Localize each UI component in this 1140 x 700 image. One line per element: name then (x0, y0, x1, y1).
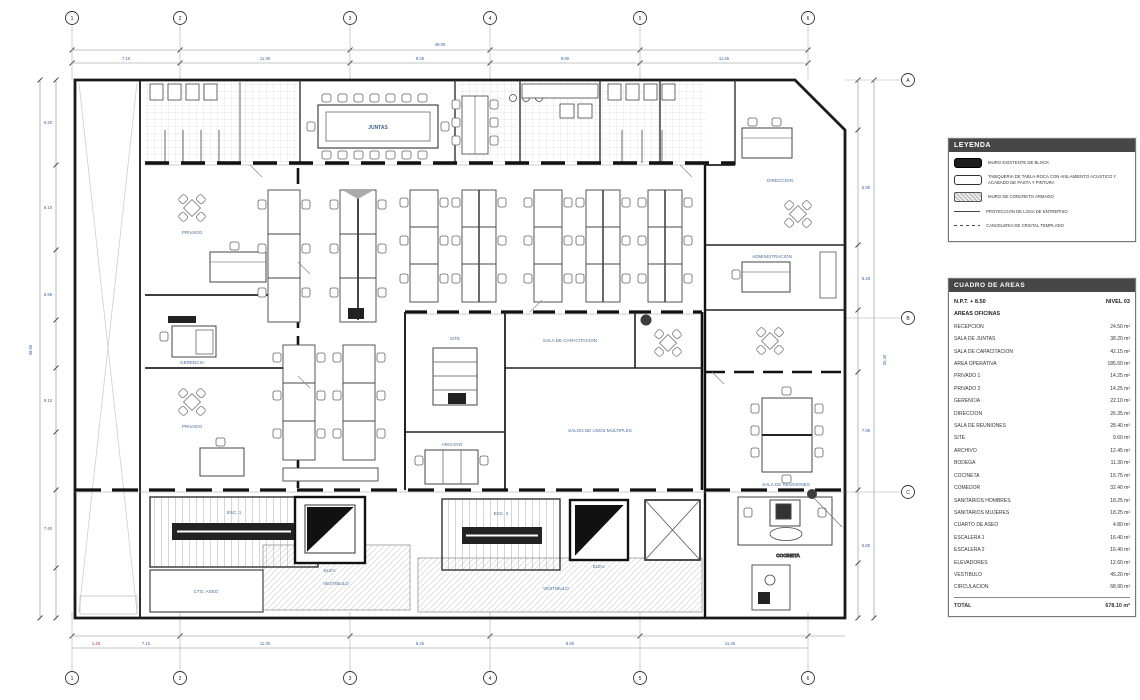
room-area: 15.75 m² (1110, 470, 1130, 482)
room-name: SALA DE REUNIONES (954, 420, 1006, 432)
dimension-text-left: 6.20 6.10 5.95 8.10 7.40 38.55 (28, 120, 53, 531)
dimension-chain-left (38, 78, 59, 621)
svg-text:9.25: 9.25 (416, 56, 425, 61)
svg-text:11.45: 11.45 (725, 641, 736, 646)
room-area: 11.30 m² (1111, 457, 1130, 469)
grid-bubbles-right: A B C (902, 74, 915, 499)
svg-text:C: C (906, 490, 910, 496)
legend-item-label: PROYECCION DE LOSA DE ENTREPISO (986, 209, 1068, 215)
legend-item: TABIQUERIA DE TABLA-ROCA CON AISLAMIENTO… (954, 174, 1130, 186)
svg-text:6.10: 6.10 (44, 205, 53, 210)
room-name: RECEPCION (954, 321, 984, 333)
stair-2: ESC. 2 (442, 499, 560, 570)
svg-text:1: 1 (71, 16, 74, 22)
svg-text:11.30: 11.30 (260, 641, 271, 646)
legend-item-label: MURO DE CONCRETO ARMADO (988, 194, 1054, 200)
legend-item: MURO EXISTENTE DE BLOCK (954, 158, 1130, 168)
svg-text:1: 1 (71, 676, 74, 682)
svg-text:4: 4 (489, 676, 492, 682)
room-area: 14.25 m² (1110, 370, 1130, 382)
table-row: BODEGA11.30 m² (954, 457, 1130, 469)
room-area: 9.60 m² (1113, 432, 1130, 444)
svg-text:3: 3 (349, 676, 352, 682)
central-core-rooms: SITE ARCHIVO SALA DE CAPACITACION SALON … (405, 312, 702, 490)
room-name: SITE (954, 432, 965, 444)
table-row: SALA DE CAPACITACION42.15 m² (954, 346, 1130, 358)
room-name: SANITARIOS HOMBRES (954, 495, 1011, 507)
room-name: ESCALERA 1 (954, 532, 985, 544)
svg-text:ADMINISTRACION: ADMINISTRACION (752, 254, 792, 259)
table-row: PRIVADO 114.25 m² (954, 370, 1130, 382)
dashed-swatch-icon (954, 222, 980, 230)
room-area: 32.40 m² (1110, 482, 1130, 494)
svg-text:SITE: SITE (450, 336, 460, 341)
table-row: SANITARIOS HOMBRES18.25 m² (954, 495, 1130, 507)
open-office-benches (258, 190, 692, 481)
room-area: 185.60 m² (1107, 358, 1130, 370)
svg-text:9.90: 9.90 (566, 641, 575, 646)
svg-text:7.10: 7.10 (142, 641, 151, 646)
legend-item-label: TABIQUERIA DE TABLA-ROCA CON AISLAMIENTO… (988, 174, 1130, 186)
svg-text:ELEV.: ELEV. (324, 568, 337, 573)
svg-text:VESTIBULO: VESTIBULO (543, 586, 569, 591)
total-value: 678.10 m² (1105, 600, 1130, 612)
svg-text:49.00: 49.00 (435, 42, 446, 47)
room-area: 12.45 m² (1110, 445, 1130, 457)
room-name: PRIVADO 1 (954, 370, 980, 382)
svg-text:5.90: 5.90 (862, 185, 871, 190)
svg-text:6: 6 (807, 676, 810, 682)
meeting-room-top: JUNTAS (307, 94, 498, 159)
legend-item: MURO DE CONCRETO ARMADO (954, 192, 1130, 202)
svg-text:ELEV.: ELEV. (593, 564, 606, 569)
room-area: 24.50 m² (1110, 321, 1130, 333)
room-area: 16.40 m² (1110, 532, 1130, 544)
table-row: RECEPCION24.50 m² (954, 321, 1130, 333)
room-name: GERENCIA (954, 395, 980, 407)
room-name: COMEDOR (954, 482, 980, 494)
svg-text:COCINETA: COCINETA (776, 553, 800, 558)
table-row: SALA DE REUNIONES28.40 m² (954, 420, 1130, 432)
bottom-core-band: VESTIBULO VESTIBULO ESC. 1 ELEV. CTO. AS… (75, 489, 845, 612)
room-label: JUNTAS (368, 125, 388, 131)
svg-text:GERENCIA: GERENCIA (180, 360, 205, 365)
svg-text:6.80: 6.80 (862, 543, 871, 548)
svg-text:CTO. ASEO: CTO. ASEO (194, 589, 219, 594)
areas-panel: CUADRO DE AREAS N.P.T. + 8.50 NIVEL 03 A… (948, 278, 1136, 617)
svg-text:PRIVADO: PRIVADO (182, 230, 203, 235)
section-label: AREAS OFICINAS (954, 308, 1000, 320)
svg-text:5: 5 (639, 16, 642, 22)
table-row: SITE9.60 m² (954, 432, 1130, 444)
svg-text:6.20: 6.20 (44, 120, 53, 125)
room-area: 14.25 m² (1110, 383, 1130, 395)
svg-text:VESTIBULO: VESTIBULO (323, 581, 349, 586)
room-area: 22.10 m² (1110, 395, 1130, 407)
table-row: ELEVADORES12.60 m² (954, 557, 1130, 569)
svg-text:11.30: 11.30 (260, 56, 271, 61)
room-name: SALA DE CAPACITACION (954, 346, 1013, 358)
svg-text:2: 2 (179, 676, 182, 682)
svg-text:2: 2 (179, 16, 182, 22)
table-row: VESTIBULO45.20 m² (954, 569, 1130, 581)
room-name: SALA DE JUNTAS (954, 333, 995, 345)
screenshot-stage: 49.00 7.10 11.30 9.25 9.90 11.45 1.20 7.… (0, 0, 1140, 700)
svg-text:PRIVADO: PRIVADO (182, 424, 203, 429)
svg-text:8.10: 8.10 (44, 398, 53, 403)
svg-text:7.10: 7.10 (122, 56, 131, 61)
room-area: 16.40 m² (1110, 544, 1130, 556)
table-row: CUARTO DE ASEO4.80 m² (954, 519, 1130, 531)
table-row: COCINETA15.75 m² (954, 470, 1130, 482)
svg-text:3: 3 (349, 16, 352, 22)
svg-text:11.45: 11.45 (719, 56, 730, 61)
grid-bubbles-bottom: 1 2 3 4 5 6 (66, 672, 815, 685)
room-name: COCINETA (954, 470, 979, 482)
legend-header: LEYENDA (949, 139, 1135, 152)
svg-text:SALA DE REUNIONES: SALA DE REUNIONES (762, 482, 810, 487)
floor-plan-drawing: 49.00 7.10 11.30 9.25 9.90 11.45 1.20 7.… (0, 0, 940, 700)
room-area: 26.35 m² (1110, 408, 1130, 420)
svg-text:4: 4 (489, 16, 492, 22)
legend-item-label: CANCELERIA DE CRISTAL TEMPLADO (986, 223, 1064, 229)
solid-swatch-icon (954, 158, 982, 168)
svg-text:ARCHIVO: ARCHIVO (442, 442, 463, 447)
areas-header: CUADRO DE AREAS (949, 279, 1135, 292)
elevator-1: ELEV. (295, 497, 365, 573)
table-row: GERENCIA22.10 m² (954, 395, 1130, 407)
room-area: 42.15 m² (1110, 346, 1130, 358)
room-name: CUARTO DE ASEO (954, 519, 998, 531)
level-label: N.P.T. + 8.50 (954, 296, 986, 308)
table-row: AREA OPERATIVA185.60 m² (954, 358, 1130, 370)
room-area: 68.90 m² (1110, 581, 1130, 593)
total-row: TOTAL 678.10 m² (954, 597, 1130, 612)
concrete-swatch-icon (954, 192, 982, 202)
svg-text:ESC. 2: ESC. 2 (494, 511, 509, 516)
room-area: 45.20 m² (1110, 569, 1130, 581)
legend-panel: LEYENDA MURO EXISTENTE DE BLOCKTABIQUERI… (948, 138, 1136, 242)
section-row: AREAS OFICINAS (954, 308, 1130, 320)
room-area: 38.20 m² (1110, 333, 1130, 345)
room-name: ELEVADORES (954, 557, 988, 569)
room-name: CIRCULACION (954, 581, 988, 593)
table-row: ARCHIVO12.45 m² (954, 445, 1130, 457)
table-row: ESCALERA 216.40 m² (954, 544, 1130, 556)
level-row: N.P.T. + 8.50 NIVEL 03 (954, 296, 1130, 308)
room-name: VESTIBULO (954, 569, 982, 581)
area-rows: RECEPCION24.50 m²SALA DE JUNTAS38.20 m²S… (954, 321, 1130, 594)
grid-bubbles-top: 1 2 3 4 5 6 (66, 12, 815, 25)
dimension-text-bottom: 1.20 7.10 11.30 9.25 9.90 11.45 (92, 641, 736, 646)
table-row: CIRCULACION68.90 m² (954, 581, 1130, 593)
dimension-chain-right (856, 78, 877, 621)
room-name: SANITARIOS MUJERES (954, 507, 1009, 519)
level-value: NIVEL 03 (1106, 296, 1130, 308)
stair-1: ESC. 1 (150, 497, 318, 567)
duct-shaft (645, 500, 700, 560)
svg-text:9.90: 9.90 (561, 56, 570, 61)
room-name: PRIVADO 2 (954, 383, 980, 395)
svg-text:SALON DE USOS MULTIPLES: SALON DE USOS MULTIPLES (568, 428, 632, 433)
svg-text:7.95: 7.95 (862, 428, 871, 433)
svg-text:38.55: 38.55 (28, 344, 33, 355)
legend-items: MURO EXISTENTE DE BLOCKTABIQUERIA DE TAB… (949, 152, 1135, 241)
room-area: 18.25 m² (1110, 495, 1130, 507)
outline-swatch-icon (954, 175, 982, 185)
line-dot-swatch-icon (954, 208, 980, 216)
svg-text:9.25: 9.25 (416, 641, 425, 646)
room-name: ARCHIVO (954, 445, 977, 457)
table-row: COMEDOR32.40 m² (954, 482, 1130, 494)
areas-body: N.P.T. + 8.50 NIVEL 03 AREAS OFICINAS RE… (949, 292, 1135, 616)
legend-item-label: MURO EXISTENTE DE BLOCK (988, 160, 1049, 166)
svg-text:ESC. 1: ESC. 1 (227, 510, 242, 515)
svg-text:5: 5 (639, 676, 642, 682)
table-row: SALA DE JUNTAS38.20 m² (954, 333, 1130, 345)
svg-text:5.95: 5.95 (44, 292, 53, 297)
room-name: DIRECCION (954, 408, 982, 420)
elevator-2: ELEV. (570, 500, 628, 569)
table-row: SANITARIOS MUJERES18.25 m² (954, 507, 1130, 519)
svg-text:6.25: 6.25 (862, 276, 871, 281)
legend-item: PROYECCION DE LOSA DE ENTREPISO (954, 208, 1130, 216)
kitchenette: COCINETA (738, 497, 832, 610)
svg-text:6: 6 (807, 16, 810, 22)
room-name: BODEGA (954, 457, 975, 469)
room-name: AREA OPERATIVA (954, 358, 997, 370)
svg-text:SALA DE CAPACITACION: SALA DE CAPACITACION (543, 338, 597, 343)
table-row: ESCALERA 116.40 m² (954, 532, 1130, 544)
svg-text:7.40: 7.40 (44, 526, 53, 531)
total-label: TOTAL (954, 600, 971, 612)
room-area: 28.40 m² (1110, 420, 1130, 432)
room-area: 4.80 m² (1113, 519, 1130, 531)
dimension-text-right: 5.90 6.25 7.95 6.80 35.40 (862, 185, 887, 548)
room-area: 12.60 m² (1110, 557, 1130, 569)
room-area: 18.25 m² (1110, 507, 1130, 519)
dimension-chain-top (70, 48, 811, 66)
table-row: PRIVADO 214.25 m² (954, 383, 1130, 395)
restrooms-service-band (145, 80, 735, 165)
legend-item: CANCELERIA DE CRISTAL TEMPLADO (954, 222, 1130, 230)
svg-text:35.40: 35.40 (882, 354, 887, 365)
svg-text:DIRECCION: DIRECCION (767, 178, 793, 183)
room-name: ESCALERA 2 (954, 544, 985, 556)
svg-text:1.20: 1.20 (92, 641, 101, 646)
table-row: DIRECCION26.35 m² (954, 408, 1130, 420)
